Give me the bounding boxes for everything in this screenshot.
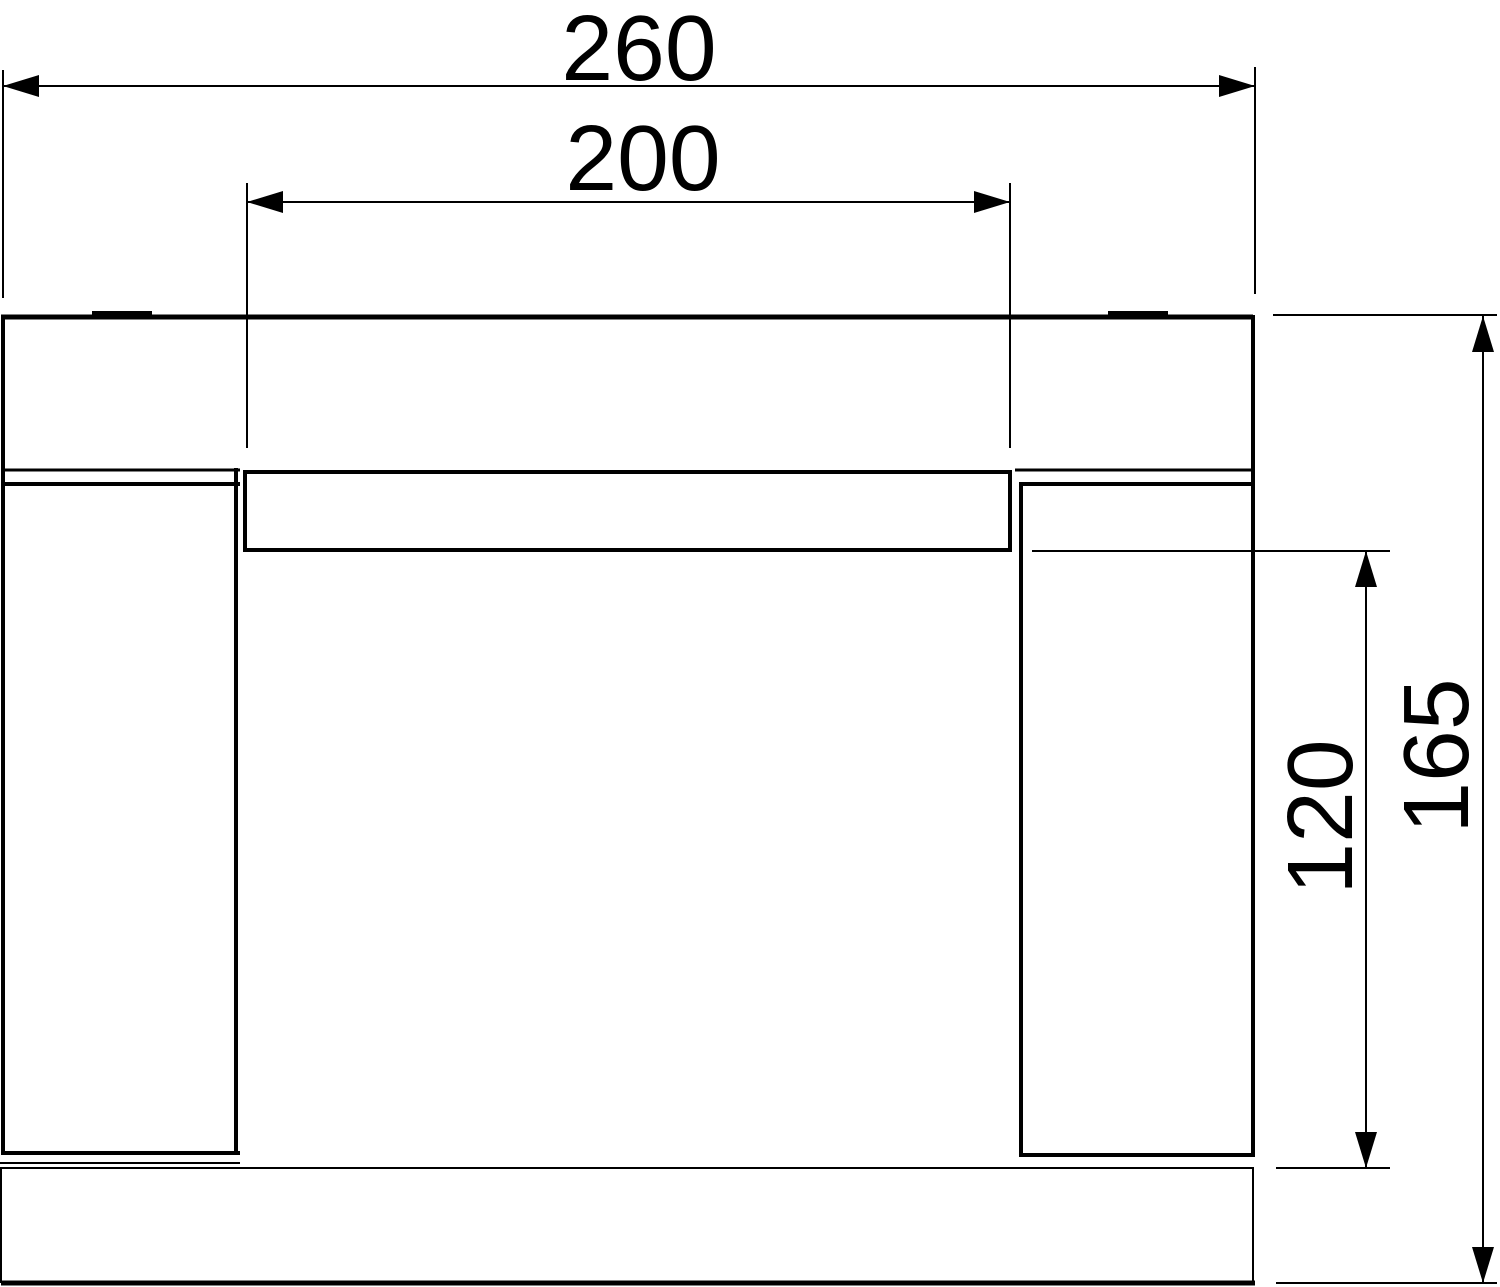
dim-label-opening-width: 200 [565,106,720,210]
dim-165-arrow-bottom [1472,1247,1494,1283]
technical-drawing-canvas: 260 200 120 165 [0,0,1500,1287]
dim-label-overall-width: 260 [561,0,716,100]
profile-cross-section [0,311,1255,1283]
dim-label-inner-height: 120 [1268,739,1372,894]
dim-120-arrow-bottom [1355,1132,1377,1168]
dim-260-arrow-right [1219,75,1255,97]
cover-plate [245,472,1010,550]
dim-165-arrow-top [1472,316,1494,352]
dim-label-overall-height: 165 [1384,678,1488,833]
dim-200-arrow-left [247,191,283,213]
dimension-inner-height: 120 [1032,551,1390,1168]
dimension-opening-width: 200 [247,106,1010,448]
dim-260-arrow-left [3,75,39,97]
dim-200-arrow-right [974,191,1010,213]
dim-120-arrow-top [1355,551,1377,587]
technical-drawing-page: 260 200 120 165 [0,0,1500,1287]
